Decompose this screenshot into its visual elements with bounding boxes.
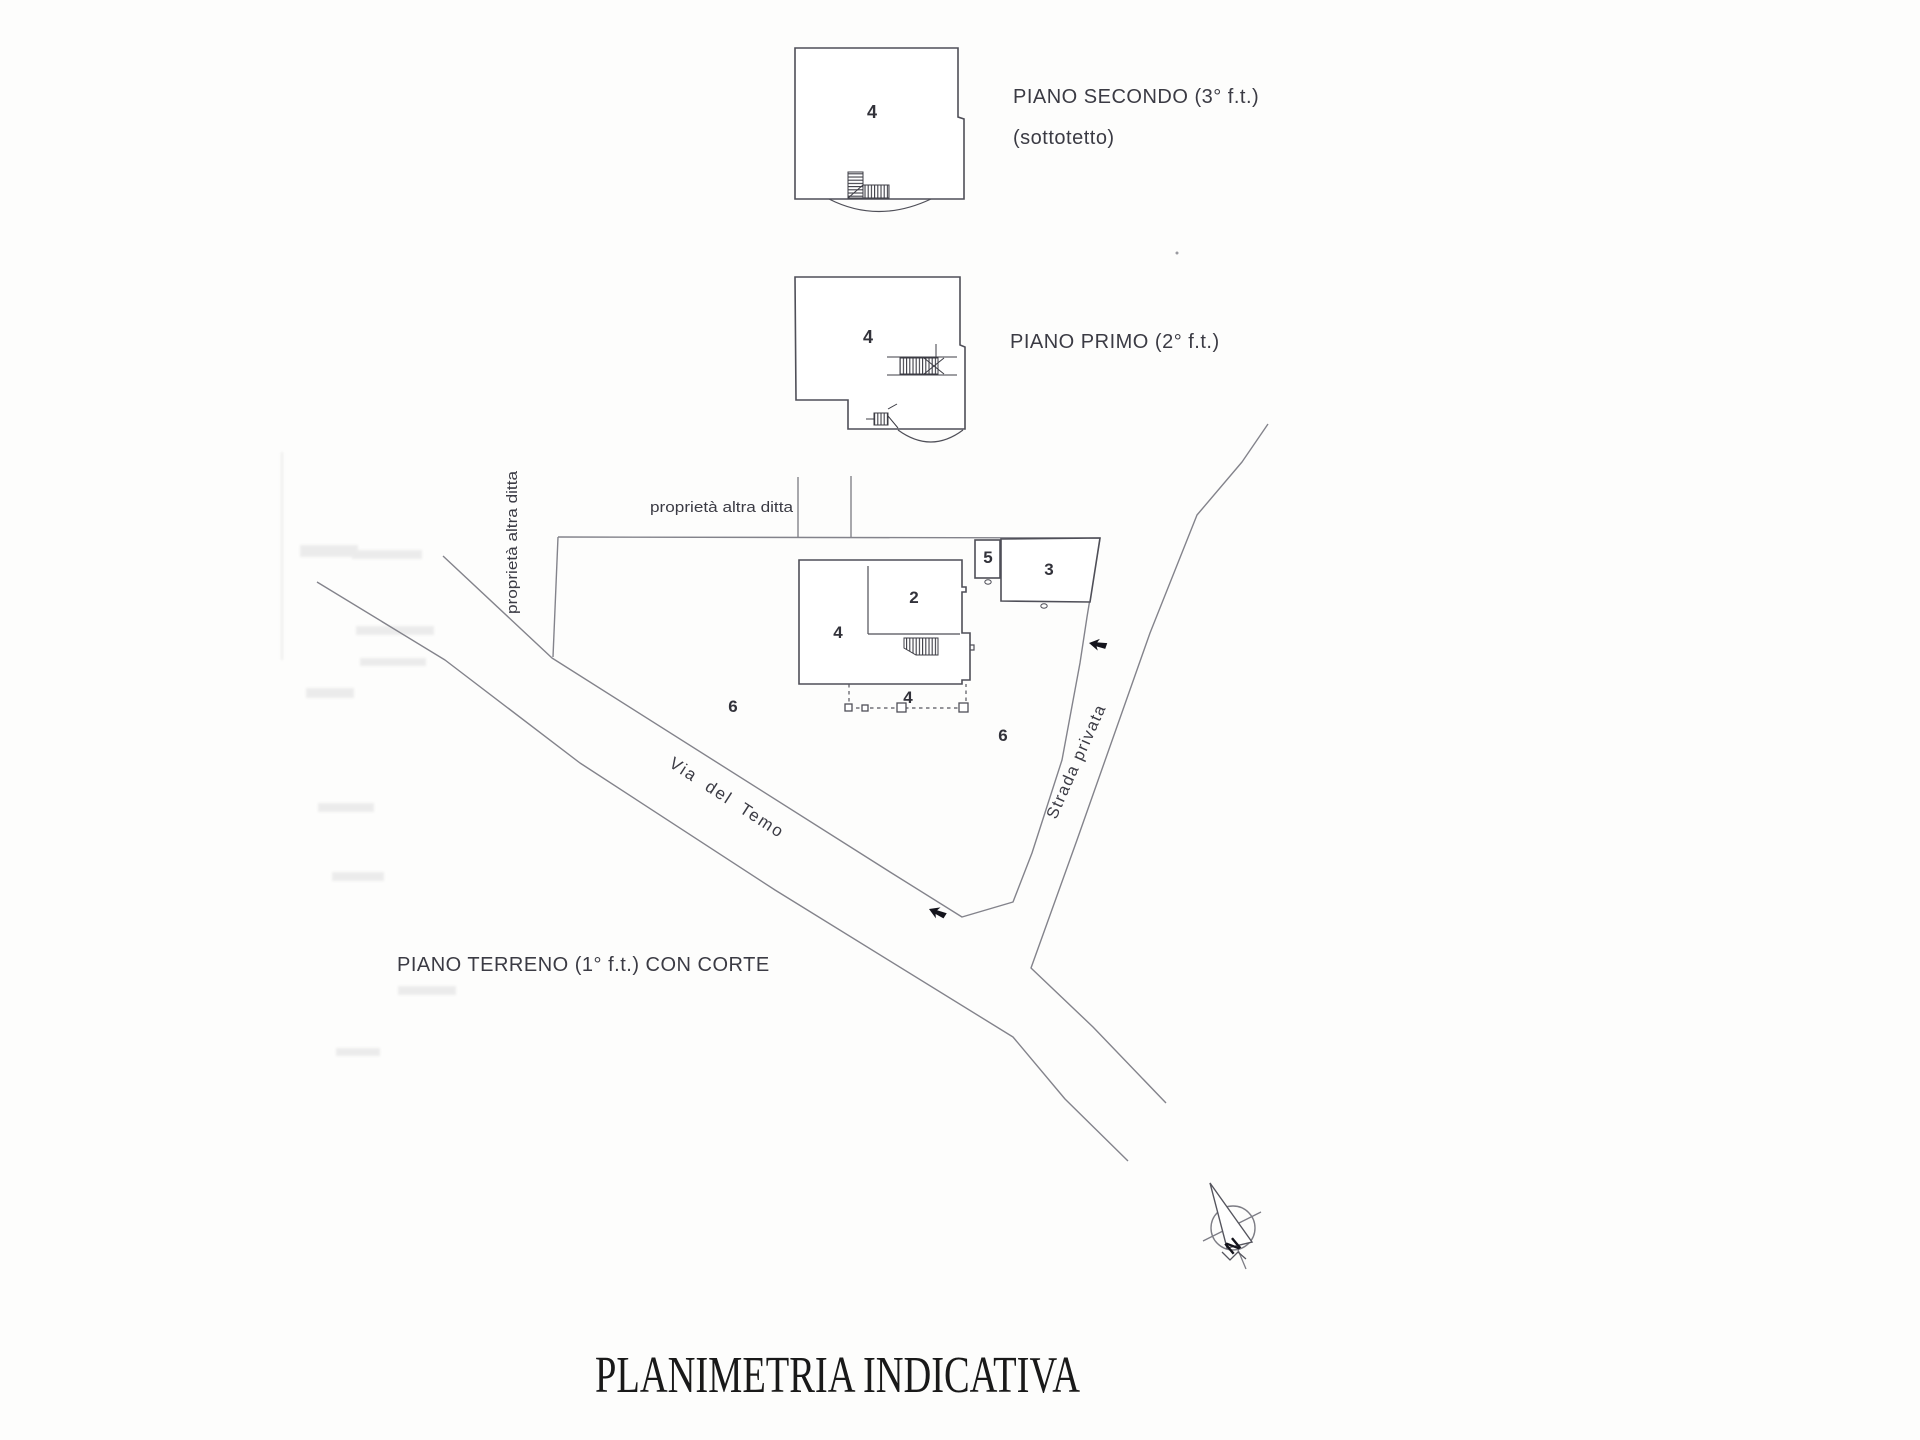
unit-label-5: 5 — [983, 548, 992, 567]
ground-caption: PIANO TERRENO (1° f.t.) CON CORTE — [397, 954, 770, 976]
door-mark — [1041, 604, 1047, 608]
floor-plan-first: 4 — [795, 277, 965, 442]
unit-label-4-canopy: 4 — [903, 688, 913, 707]
planimetry-drawing: 4 PIANO SECONDO (3° f.t.) (sottotetto) 4… — [0, 0, 1920, 1440]
unit-label-4-floor2: 4 — [867, 102, 877, 122]
balcony-arc — [898, 430, 963, 442]
road-edge-south — [317, 582, 1128, 1161]
site-plan: 4 2 5 3 4 6 6 proprietà altra ditta prop… — [317, 424, 1268, 1161]
canopy-post — [862, 705, 868, 711]
boundary-label-vertical: proprietà altra ditta — [505, 470, 521, 614]
canopy-post — [845, 704, 852, 711]
boundary-west — [553, 537, 558, 657]
canopy-post — [959, 703, 968, 712]
compass-icon: N — [1203, 1183, 1261, 1269]
boundary-label-horizontal: proprietà altra ditta — [650, 500, 794, 516]
balcony-arc — [829, 199, 931, 212]
sheet-title: PLANIMETRIA INDICATIVA — [595, 1347, 1080, 1404]
unit-label-4-building: 4 — [833, 623, 843, 642]
unit-label-2: 2 — [909, 588, 918, 607]
boundary-north — [558, 537, 1100, 538]
floor2-caption: PIANO SECONDO (3° f.t.) — [1013, 86, 1259, 108]
unit-label-6-east: 6 — [998, 726, 1007, 745]
unit-label-3: 3 — [1044, 560, 1053, 579]
floor2-subcaption: (sottotetto) — [1013, 127, 1115, 149]
unit-label-4-floor1: 4 — [863, 327, 873, 347]
building-main — [799, 560, 970, 684]
road-label-strada-privata: Strada privata — [1043, 701, 1110, 821]
road-label-via-del-temo: Via del Temo — [666, 753, 788, 842]
planimetry-sheet: 4 PIANO SECONDO (3° f.t.) (sottotetto) 4… — [0, 0, 1920, 1440]
access-arrow-icon — [1088, 637, 1108, 652]
scan-speck — [1176, 252, 1179, 255]
door-mark — [985, 580, 991, 584]
unit-label-6-west: 6 — [728, 697, 737, 716]
floor1-caption: PIANO PRIMO (2° f.t.) — [1010, 331, 1220, 353]
floor-plan-second: 4 — [795, 48, 964, 212]
